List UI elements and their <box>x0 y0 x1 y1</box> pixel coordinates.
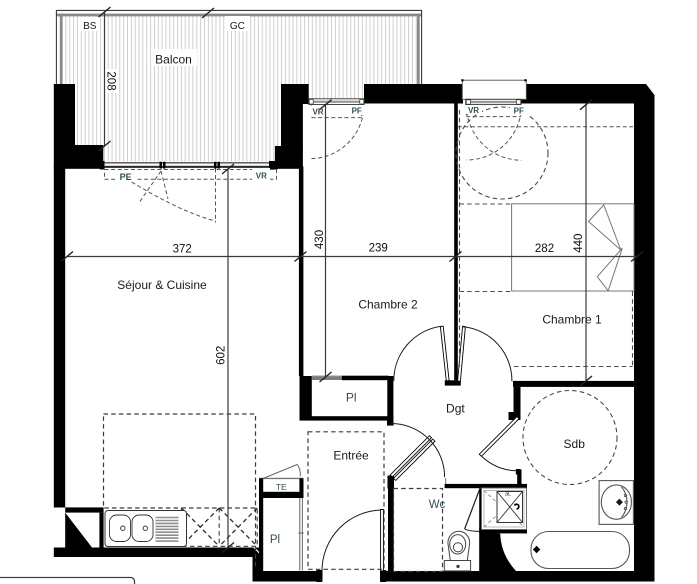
svg-text:372: 372 <box>173 243 192 255</box>
svg-text:GC: GC <box>230 21 245 32</box>
svg-text:Entrée: Entrée <box>333 448 369 462</box>
svg-text:PE: PE <box>120 172 132 182</box>
svg-text:VR: VR <box>312 107 323 116</box>
svg-text:239: 239 <box>369 242 388 254</box>
svg-text:VR: VR <box>468 106 479 115</box>
svg-text:282: 282 <box>535 243 554 255</box>
svg-text:Pl: Pl <box>270 534 280 546</box>
svg-text:PF: PF <box>352 107 362 116</box>
svg-text:Sdb: Sdb <box>564 437 586 451</box>
svg-text:Séjour & Cuisine: Séjour & Cuisine <box>117 278 207 292</box>
svg-text:430: 430 <box>314 230 326 249</box>
svg-text:602: 602 <box>215 346 227 365</box>
svg-text:Chambre 2: Chambre 2 <box>358 298 418 312</box>
svg-text:Pl: Pl <box>346 391 357 405</box>
svg-text:TE: TE <box>276 482 287 492</box>
svg-text:aL: aL <box>505 492 511 498</box>
svg-text:Wc: Wc <box>429 499 446 511</box>
svg-text:Dgt: Dgt <box>446 402 465 416</box>
svg-text:BS: BS <box>83 21 97 32</box>
svg-text:PF: PF <box>514 107 524 116</box>
svg-text:208: 208 <box>104 71 116 90</box>
svg-text:Chambre 1: Chambre 1 <box>542 313 602 327</box>
svg-text:Balcon: Balcon <box>155 53 192 67</box>
svg-text:VR: VR <box>256 172 267 181</box>
svg-text:440: 440 <box>573 234 585 253</box>
